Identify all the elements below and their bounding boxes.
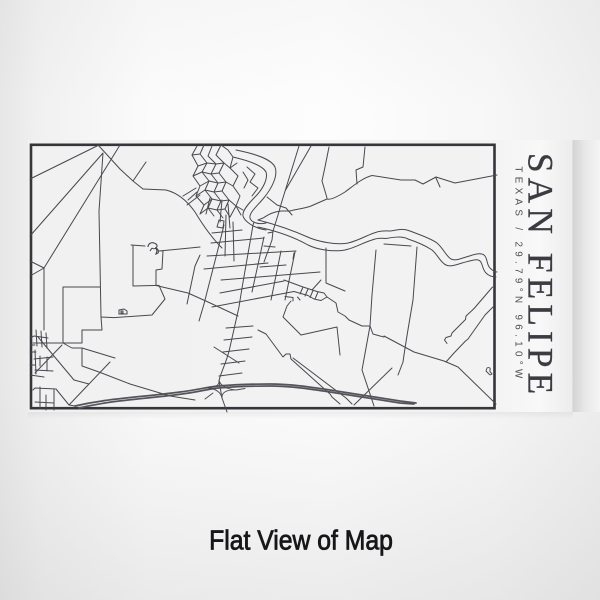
svg-text:Flat View of Map: Flat View of Map <box>209 524 393 556</box>
svg-text:SAN FELIPE: SAN FELIPE <box>521 153 561 399</box>
svg-text:TEXAS / 29.79°N 96.10°W: TEXAS / 29.79°N 96.10°W <box>513 166 524 382</box>
